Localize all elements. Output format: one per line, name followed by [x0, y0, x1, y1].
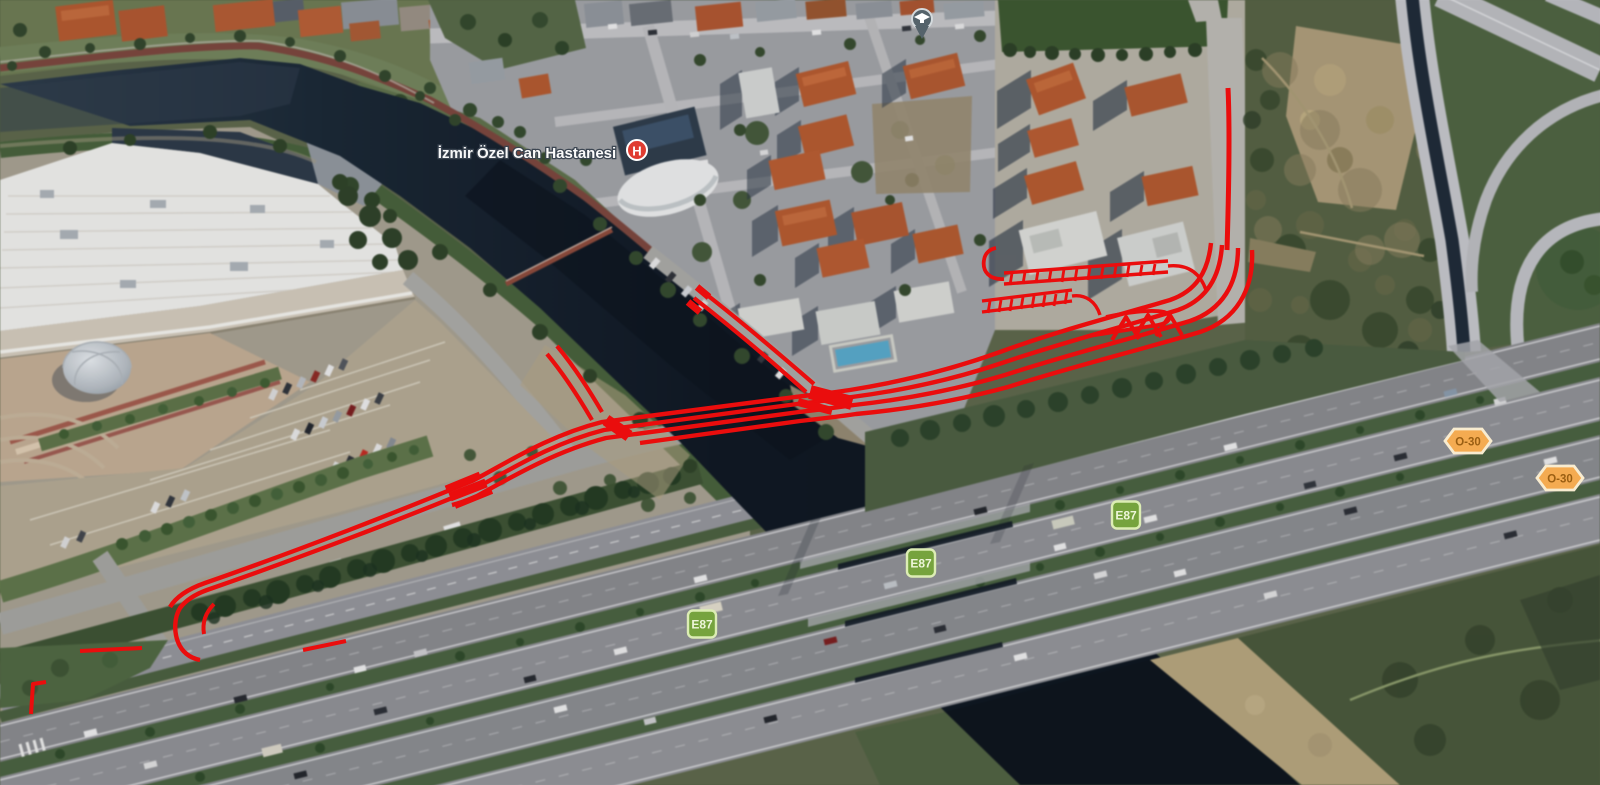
svg-text:O-30: O-30 [1547, 474, 1573, 486]
svg-text:E87: E87 [1115, 509, 1137, 523]
svg-text:E87: E87 [691, 618, 713, 632]
svg-text:O-30: O-30 [1455, 437, 1481, 449]
svg-text:H: H [632, 144, 641, 159]
svg-text:İzmir Özel Can Hastanesi: İzmir Özel Can Hastanesi [438, 145, 616, 162]
svg-text:E87: E87 [910, 557, 932, 571]
